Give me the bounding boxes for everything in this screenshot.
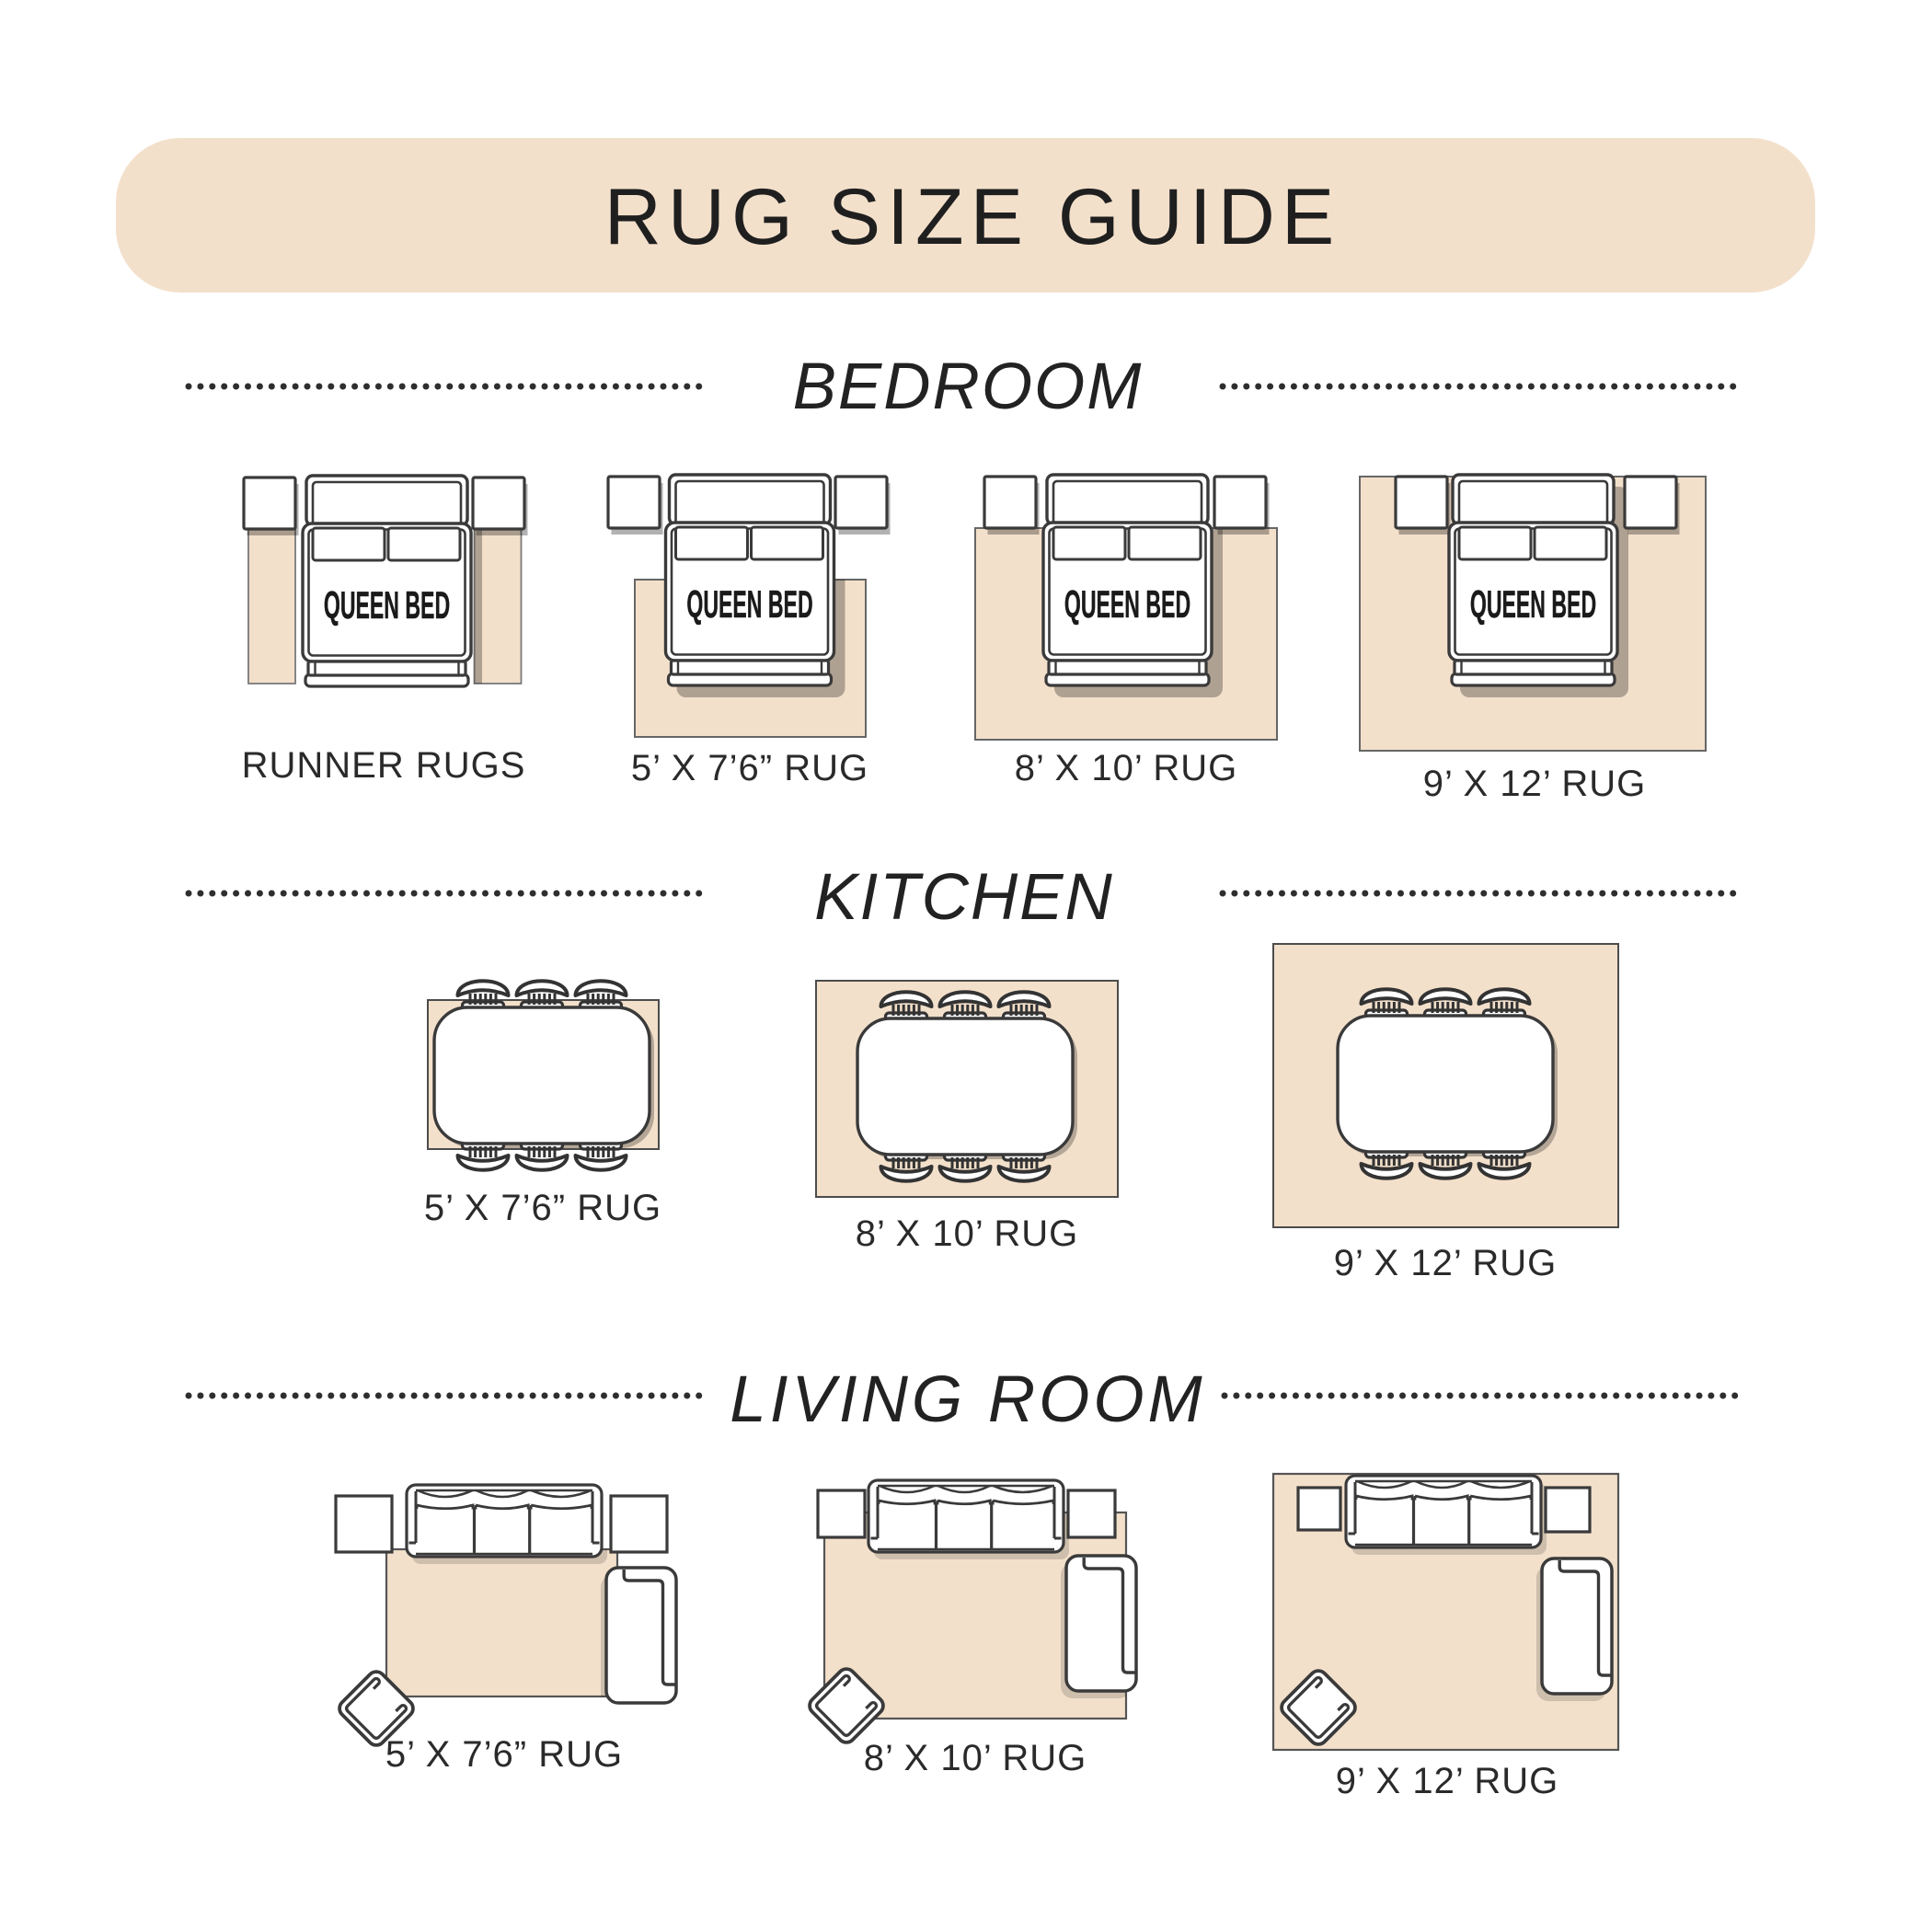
svg-text:8’ X 10’ RUG: 8’ X 10’ RUG [1015,748,1237,788]
svg-text:KITCHEN: KITCHEN [814,861,1114,934]
svg-text:5’ X 7’6” RUG: 5’ X 7’6” RUG [424,1188,661,1228]
svg-text:8’ X 10’ RUG: 8’ X 10’ RUG [856,1213,1078,1254]
svg-text:9’ X 12’ RUG: 9’ X 12’ RUG [1423,764,1646,804]
svg-text:RUG SIZE GUIDE: RUG SIZE GUIDE [604,173,1340,261]
svg-text:BEDROOM: BEDROOM [793,351,1144,423]
svg-text:LIVING ROOM: LIVING ROOM [730,1363,1205,1436]
svg-text:8’ X 10’ RUG: 8’ X 10’ RUG [864,1738,1087,1778]
svg-text:9’ X 12’ RUG: 9’ X 12’ RUG [1334,1243,1557,1283]
svg-text:RUNNER RUGS: RUNNER RUGS [242,745,526,786]
svg-text:5’ X 7’6” RUG: 5’ X 7’6” RUG [385,1734,623,1775]
svg-text:5’ X 7’6” RUG: 5’ X 7’6” RUG [631,748,868,788]
svg-text:9’ X 12’ RUG: 9’ X 12’ RUG [1336,1761,1558,1801]
